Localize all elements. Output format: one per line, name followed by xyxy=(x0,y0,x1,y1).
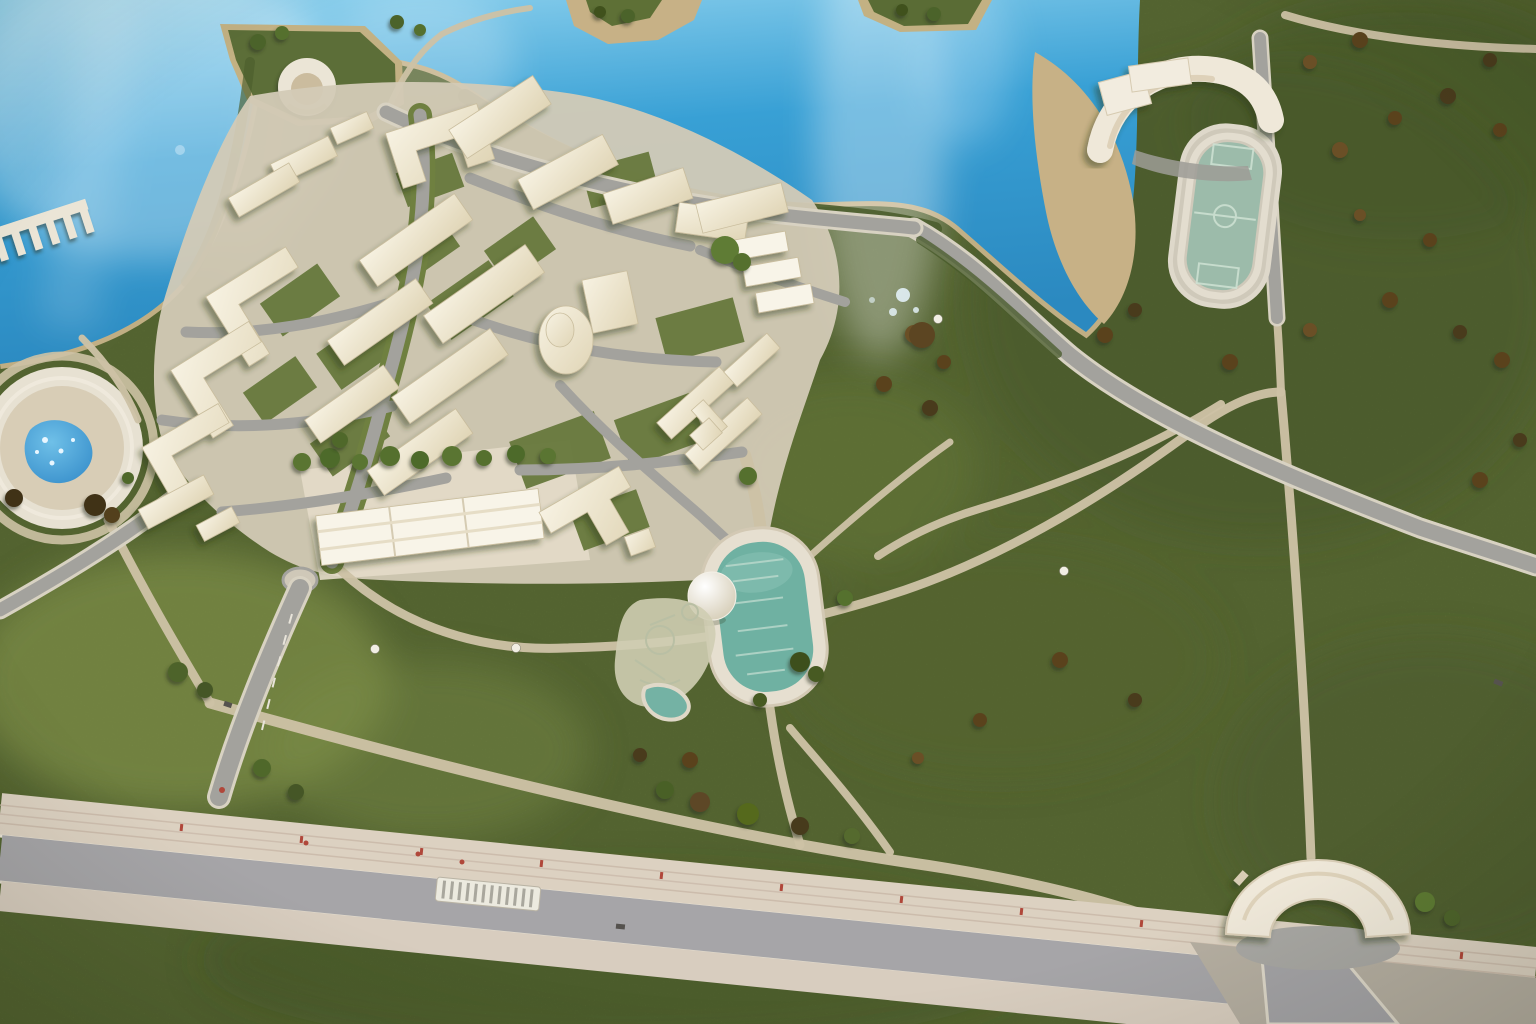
model-photo xyxy=(0,0,1536,1024)
vignette xyxy=(0,0,1536,1024)
